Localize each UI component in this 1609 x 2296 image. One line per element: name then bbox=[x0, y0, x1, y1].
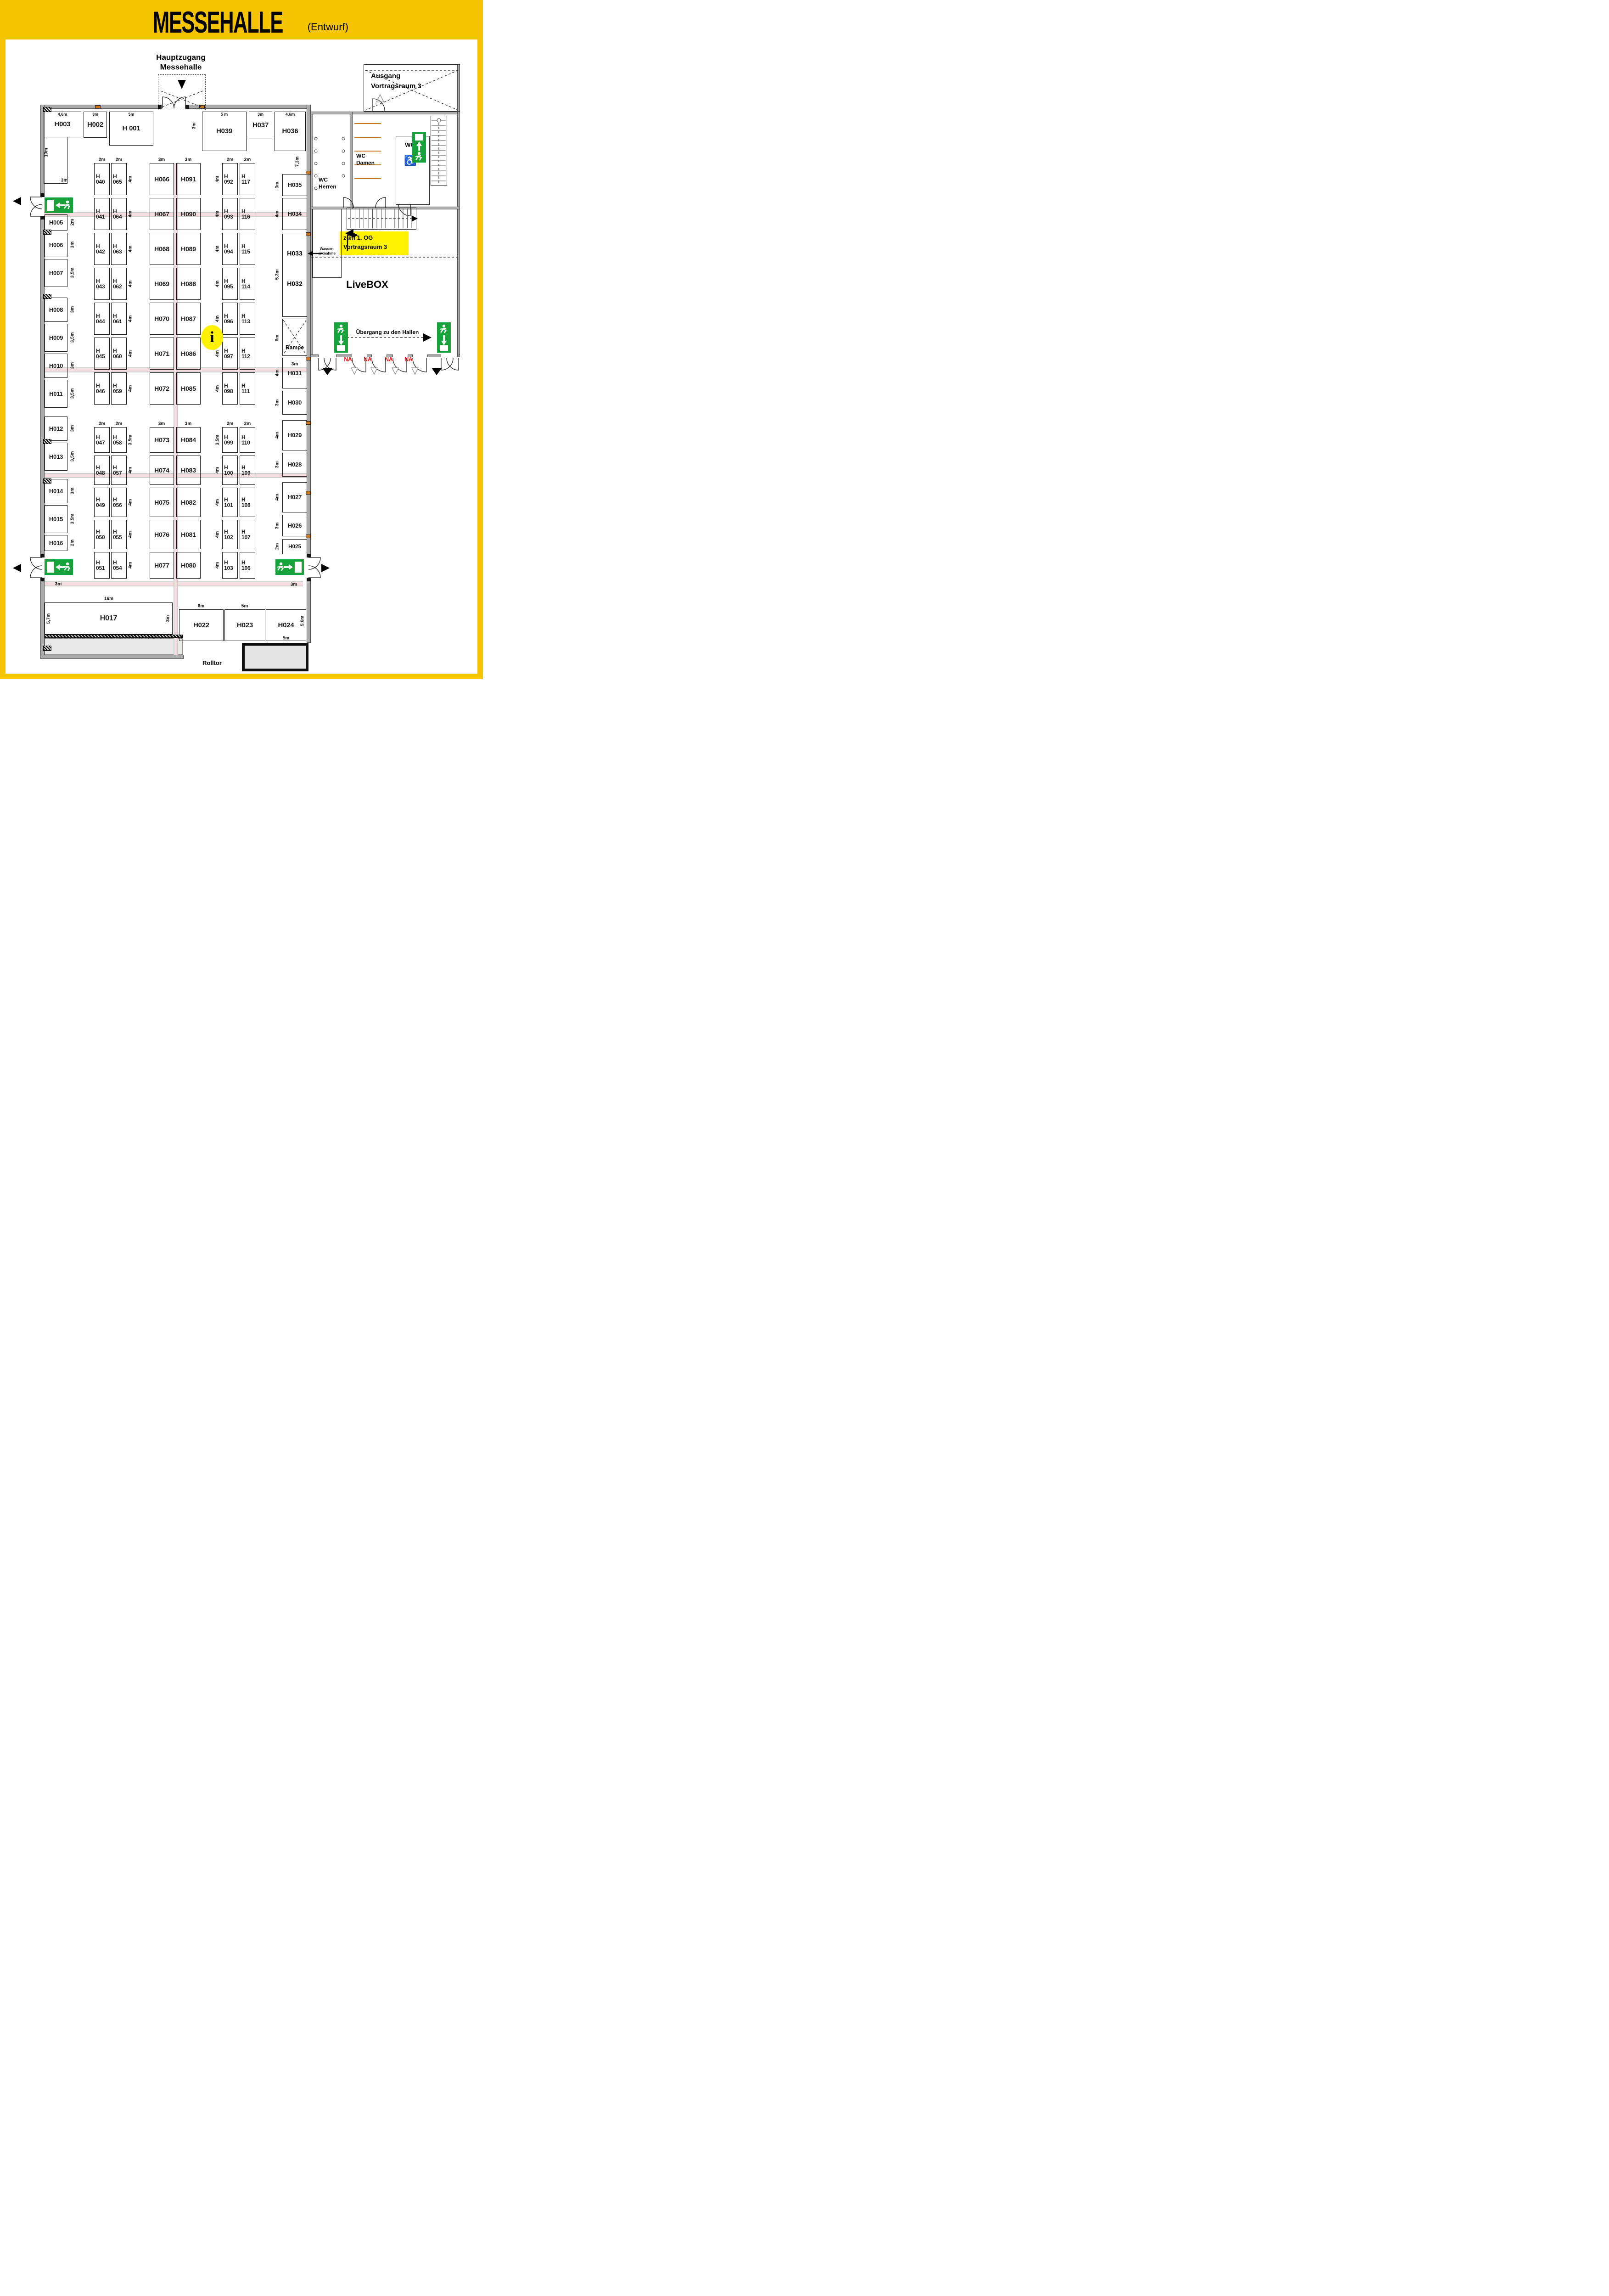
dimension-label: 3m bbox=[70, 362, 75, 369]
structure-hatchw bbox=[45, 635, 183, 638]
booth-label: H074 bbox=[154, 467, 169, 473]
booth-label: H013 bbox=[49, 454, 63, 460]
booth-H071: H071 bbox=[150, 338, 174, 370]
structure-oline bbox=[354, 123, 381, 124]
dimension-label: 6m bbox=[198, 604, 204, 609]
booth-label: H 112 bbox=[241, 348, 250, 359]
dimension-label: 4m bbox=[275, 211, 280, 217]
frame-bottom bbox=[0, 674, 483, 679]
booth-label: H 107 bbox=[241, 529, 250, 540]
page-title: MESSEHALLE bbox=[153, 9, 283, 36]
dimension-label: 16m bbox=[104, 597, 113, 602]
booth-H087: H087 bbox=[176, 303, 201, 335]
booth-H101: H 101 bbox=[222, 488, 238, 517]
booth-H116: H 116 bbox=[240, 198, 255, 230]
dimension-label: 5,6m bbox=[300, 616, 305, 626]
booth-label: H080 bbox=[181, 562, 196, 568]
structure-bmark bbox=[40, 216, 45, 219]
wasser-line1: Wasser- bbox=[320, 248, 334, 252]
booth-label: H 103 bbox=[224, 560, 233, 571]
west-bottom-exit-arrow bbox=[13, 564, 21, 572]
dimension-label: 3m bbox=[158, 158, 165, 163]
booth-label: H 056 bbox=[113, 497, 122, 508]
booth-H033-H032 bbox=[282, 234, 307, 317]
passage-door-leaf bbox=[447, 358, 459, 370]
dimension-label: 3m bbox=[275, 400, 280, 406]
booth-label: H 093 bbox=[224, 208, 233, 219]
booth-label: H025 bbox=[288, 544, 301, 549]
passage-door-arrow-right bbox=[432, 368, 442, 375]
booth-H046: H 046 bbox=[94, 372, 110, 405]
booth-H009: H009 bbox=[45, 324, 67, 352]
booth-label: H002 bbox=[87, 121, 103, 128]
structure-wall bbox=[307, 578, 311, 643]
na-door-marker-3 bbox=[392, 368, 398, 374]
rampe-label: Rampe bbox=[286, 344, 304, 350]
booth-label: H 040 bbox=[96, 174, 105, 185]
booth-label: H026 bbox=[288, 523, 302, 529]
booth-H093: H 093 bbox=[222, 198, 238, 230]
dimension-label: 4m bbox=[128, 531, 133, 538]
dimension-label: 5,7m bbox=[46, 613, 51, 624]
booth-H015: H015 bbox=[45, 505, 67, 533]
booth-label: H030 bbox=[288, 400, 302, 405]
booth-H097: H 097 bbox=[222, 338, 238, 370]
booth-label: H086 bbox=[181, 350, 196, 357]
structure-wall bbox=[310, 112, 460, 114]
booth-label: H 049 bbox=[96, 497, 105, 508]
na-door-leaf-2 bbox=[372, 358, 386, 372]
booth-H061: H 061 bbox=[111, 303, 127, 335]
dimension-label: 3,5m bbox=[70, 451, 75, 462]
structure-wall bbox=[350, 112, 353, 209]
dimension-label: 4m bbox=[128, 467, 133, 473]
booth-H086: H086 bbox=[176, 338, 201, 370]
booth-H069: H069 bbox=[150, 268, 174, 300]
passage-door-arrow-left bbox=[322, 368, 333, 375]
dimension-label: 2m bbox=[99, 422, 105, 427]
booth-H045: H 045 bbox=[94, 338, 110, 370]
booth-H017: H017 bbox=[45, 602, 173, 635]
booth-label: H034 bbox=[288, 211, 302, 217]
structure-omark bbox=[306, 171, 311, 174]
zum-og-line2: Vortragsraum 3 bbox=[343, 244, 387, 250]
structure-bmark bbox=[40, 578, 45, 581]
dimension-label: 3,5m bbox=[70, 514, 75, 524]
structure-omark bbox=[306, 232, 311, 236]
booth-H070: H070 bbox=[150, 303, 174, 335]
booth-label: H091 bbox=[181, 176, 196, 182]
structure-thinb bbox=[312, 209, 342, 278]
east-bottom-exit-arrow bbox=[321, 564, 330, 572]
dimension-label: 3m bbox=[166, 615, 171, 622]
booth-label: H 065 bbox=[113, 174, 122, 185]
booth-H002: H0023m bbox=[84, 112, 107, 138]
structure-wall bbox=[427, 355, 441, 357]
dimension-label: 4m bbox=[215, 385, 220, 392]
booth-H063: H 063 bbox=[111, 233, 127, 265]
booth-H112: H 112 bbox=[240, 338, 255, 370]
booth-label: H 057 bbox=[113, 465, 122, 476]
info-icon: i bbox=[201, 325, 223, 350]
booth-H117: H 117 bbox=[240, 163, 255, 195]
structure-omark bbox=[306, 491, 311, 495]
structure-wall bbox=[40, 655, 184, 659]
booth-H062: H 062 bbox=[111, 268, 127, 300]
dimension-label: 3m bbox=[291, 582, 297, 587]
passage-door-leaf bbox=[324, 358, 336, 370]
exit-pictogram-icon bbox=[334, 322, 348, 353]
booth-label: H017 bbox=[100, 615, 117, 622]
booth-H036: H0364,6m bbox=[275, 112, 306, 151]
booth-H057: H 057 bbox=[111, 456, 127, 485]
structure-omark bbox=[199, 105, 205, 108]
booth-H091: H091 bbox=[176, 163, 201, 195]
exit-sign-west-top bbox=[45, 197, 73, 213]
booth-label: H 115 bbox=[241, 243, 250, 254]
booth-label: H081 bbox=[181, 531, 196, 538]
na-label-3: NA bbox=[385, 356, 392, 362]
na-label-4: NA bbox=[404, 356, 412, 362]
dimension-label: 6m bbox=[275, 335, 280, 341]
booth-H050: H 050 bbox=[94, 520, 110, 549]
structure-hatch bbox=[43, 294, 51, 299]
booth-H067: H067 bbox=[150, 198, 174, 230]
dimension-label: 4m bbox=[215, 211, 220, 217]
na-door-marker-1 bbox=[351, 368, 358, 374]
booth-label: H 047 bbox=[96, 434, 105, 445]
booth-label: H087 bbox=[181, 315, 196, 322]
booth-label: H 102 bbox=[224, 529, 233, 540]
booth-label: H066 bbox=[154, 176, 169, 182]
dimension-label: 2m bbox=[244, 158, 251, 163]
dimension-label: 3,5m bbox=[70, 268, 75, 278]
booth-H010: H010 bbox=[45, 354, 67, 378]
booth-label: H 054 bbox=[113, 560, 122, 571]
booth-label: H 044 bbox=[96, 313, 105, 324]
exit-sign-vortragsraum bbox=[412, 132, 426, 163]
dimension-label: 3m bbox=[185, 422, 191, 427]
dimension-label: 2m bbox=[227, 158, 233, 163]
booth-label: H089 bbox=[181, 246, 196, 252]
na-door-marker-4 bbox=[412, 368, 418, 374]
booth-H042: H 042 bbox=[94, 233, 110, 265]
booth-H088: H088 bbox=[176, 268, 201, 300]
west-bottom-door-leaf bbox=[30, 557, 42, 569]
title-banner: MESSEHALLE (Entwurf) bbox=[0, 0, 483, 39]
dimension-label: 2m bbox=[70, 540, 75, 546]
booth-label: H069 bbox=[154, 281, 169, 287]
dimension-label: 4m bbox=[215, 315, 220, 322]
structure-oline bbox=[354, 178, 381, 179]
na-label-1: NA bbox=[344, 356, 352, 362]
booth-label: H073 bbox=[154, 437, 169, 443]
booth-H073: H073 bbox=[150, 427, 174, 453]
booth-H106: H 106 bbox=[240, 552, 255, 579]
booth-H043: H 043 bbox=[94, 268, 110, 300]
dimension-label: 4m bbox=[128, 499, 133, 506]
booth-label: H005 bbox=[49, 219, 63, 225]
exit-sign-passage-right bbox=[437, 322, 451, 353]
booth-H012: H012 bbox=[45, 416, 67, 441]
structure-wall bbox=[40, 216, 45, 557]
booth-H111: H 111 bbox=[240, 372, 255, 405]
booth-label: H 113 bbox=[241, 313, 250, 324]
na-label-2: NA bbox=[364, 356, 371, 362]
booth-H001: H 0015m bbox=[109, 112, 153, 146]
booth-label: H 116 bbox=[241, 208, 250, 219]
dimension-label: 3m bbox=[70, 306, 75, 313]
dimension-label: 3m bbox=[275, 182, 280, 188]
booth-label: H 108 bbox=[241, 497, 250, 508]
booth-label: H 094 bbox=[224, 243, 233, 254]
structure-bmark bbox=[185, 105, 189, 109]
booth-H075: H075 bbox=[150, 488, 174, 517]
booth-H058: H 058 bbox=[111, 427, 127, 453]
zum-og-line1: zum 1. OG bbox=[343, 235, 373, 241]
booth-H048: H 048 bbox=[94, 456, 110, 485]
dimension-label: 4m bbox=[128, 211, 133, 217]
dimension-label: 4m bbox=[215, 176, 220, 182]
dimension-label: 4m bbox=[128, 385, 133, 392]
ausgang-line1: Ausgang bbox=[371, 73, 400, 80]
booth-label: H072 bbox=[154, 385, 169, 392]
booth-label: H006 bbox=[49, 242, 63, 248]
booth-H074: H074 bbox=[150, 456, 174, 485]
rolltor-label: Rolltor bbox=[202, 660, 222, 666]
structure-hatch bbox=[43, 646, 51, 651]
booth-label: H039 bbox=[216, 128, 232, 135]
booth-H027: H027 bbox=[282, 482, 307, 512]
dimension-label: 4m bbox=[215, 531, 220, 538]
booth-label: H085 bbox=[181, 385, 196, 392]
dimension-label: 3,5m bbox=[215, 435, 220, 445]
structure-wall bbox=[40, 105, 162, 109]
passage-door-leaf bbox=[441, 358, 453, 370]
booth-H035: H035 bbox=[282, 174, 307, 196]
booth-label: H 097 bbox=[224, 348, 233, 359]
booth-label: H035 bbox=[288, 182, 302, 188]
dimension-label: 4m bbox=[275, 370, 280, 376]
booth-label: H 061 bbox=[113, 313, 122, 324]
booth-label: H077 bbox=[154, 562, 169, 568]
booth-label: H027 bbox=[288, 494, 302, 500]
booth-label: H012 bbox=[49, 426, 63, 432]
booth-label: H009 bbox=[49, 335, 63, 341]
dimension-label: 2m bbox=[227, 422, 233, 427]
booth-label: H 064 bbox=[113, 208, 122, 219]
dimension-label: 4m bbox=[128, 562, 133, 568]
structure-oline bbox=[354, 151, 381, 152]
booth-H034: H034 bbox=[282, 198, 307, 230]
structure-thinb bbox=[347, 208, 416, 230]
booth-H114: H 114 bbox=[240, 268, 255, 300]
livebox-label: LiveBOX bbox=[346, 279, 388, 290]
booth-H115: H 115 bbox=[240, 233, 255, 265]
dimension-label: 3,5m bbox=[70, 388, 75, 399]
booth-H100: H 100 bbox=[222, 456, 238, 485]
booth-H090: H090 bbox=[176, 198, 201, 230]
structure-bmark bbox=[307, 554, 311, 557]
booth-label: H083 bbox=[181, 467, 196, 473]
booth-label: H024 bbox=[278, 622, 294, 629]
booth-H007: H007 bbox=[45, 259, 67, 287]
booth-label: H088 bbox=[181, 281, 196, 287]
dimension-label: 3,5m bbox=[70, 332, 75, 343]
booth-label: H084 bbox=[181, 437, 196, 443]
booth-H064: H 064 bbox=[111, 198, 127, 230]
booth-H099: H 099 bbox=[222, 427, 238, 453]
booth-label: H031 bbox=[288, 370, 302, 376]
booth-label: H028 bbox=[288, 461, 302, 467]
booth-H110: H 110 bbox=[240, 427, 255, 453]
booth-H026: H026 bbox=[282, 515, 307, 536]
west-top-door-leaf bbox=[30, 204, 42, 216]
booth-H081: H081 bbox=[176, 520, 201, 549]
booth-H025: H025 bbox=[282, 539, 307, 554]
dimension-label: 2m bbox=[275, 543, 280, 550]
frame-left bbox=[0, 39, 6, 679]
exit-pictogram-icon bbox=[412, 132, 426, 163]
booth-H047: H 047 bbox=[94, 427, 110, 453]
dimension-label: 4m bbox=[128, 176, 133, 182]
structure-omark bbox=[95, 105, 101, 108]
booth-label: H 050 bbox=[96, 529, 105, 540]
booth-H022: H022 bbox=[179, 609, 224, 641]
booth-label: H 109 bbox=[241, 465, 250, 476]
booth-label: H 098 bbox=[224, 383, 233, 394]
structure-gfill bbox=[45, 638, 183, 655]
booth-H108: H 108 bbox=[240, 488, 255, 517]
dimension-label: 3m bbox=[70, 425, 75, 432]
booth-H095: H 095 bbox=[222, 268, 238, 300]
booth-H005: H005 bbox=[45, 214, 67, 231]
booth-H023: H023 bbox=[224, 609, 265, 641]
booth-H003-ext bbox=[44, 137, 67, 184]
exit-sign-east-bottom bbox=[275, 559, 304, 575]
booth-label: H 043 bbox=[96, 278, 105, 289]
booth-label: H071 bbox=[154, 350, 169, 357]
hauptzugang-line1: Hauptzugang bbox=[156, 54, 206, 62]
booth-label: H 048 bbox=[96, 465, 105, 476]
structure-omark bbox=[306, 357, 311, 360]
exit-sign-west-bottom bbox=[45, 559, 73, 575]
structure-bmark bbox=[307, 578, 311, 581]
ausgang-line2: Vortragsraum 3 bbox=[371, 83, 421, 90]
dimension-label: 3m bbox=[275, 523, 280, 529]
exit-pictogram-icon bbox=[45, 559, 73, 575]
booth-H056: H 056 bbox=[111, 488, 127, 517]
booth-label: H 114 bbox=[241, 278, 250, 289]
structure-bmark bbox=[158, 105, 162, 109]
dimension-label: 3m bbox=[185, 158, 191, 163]
exit-pictogram-icon bbox=[275, 559, 304, 575]
booth-H055: H 055 bbox=[111, 520, 127, 549]
booth-H065: H 065 bbox=[111, 163, 127, 195]
structure-oline bbox=[354, 137, 381, 138]
booth-H003: H0034,6m bbox=[44, 112, 81, 137]
dimension-label: 4m bbox=[128, 281, 133, 287]
booth-label: H014 bbox=[49, 488, 63, 494]
booth-label: H 042 bbox=[96, 243, 105, 254]
dimension-label: 10m bbox=[44, 148, 49, 157]
booth-label: H070 bbox=[154, 315, 169, 322]
dimension-label: 3m bbox=[70, 242, 75, 248]
west-bottom-door-leaf bbox=[30, 566, 42, 578]
booth-label: H015 bbox=[49, 516, 63, 522]
dimension-label: 2m bbox=[99, 158, 105, 163]
na-door-marker-2 bbox=[371, 368, 377, 374]
booth-H107: H 107 bbox=[240, 520, 255, 549]
booth-H008: H008 bbox=[45, 298, 67, 322]
booth-label: H 099 bbox=[224, 434, 233, 445]
exit-pictogram-icon bbox=[437, 322, 451, 353]
booth-H039: H0395 m bbox=[202, 112, 247, 151]
structure-bmark bbox=[40, 193, 45, 197]
booth-H037: H0373m bbox=[249, 112, 272, 139]
H032-label: H032 bbox=[287, 280, 302, 287]
booth-label: H037 bbox=[252, 122, 269, 129]
dimension-label: 5m bbox=[241, 604, 248, 609]
booth-H006: H006 bbox=[45, 233, 67, 257]
dimension-label: 3m bbox=[55, 582, 62, 587]
booth-label: H067 bbox=[154, 211, 169, 217]
structure-wall bbox=[310, 355, 319, 357]
booth-H082: H082 bbox=[176, 488, 201, 517]
booth-label: H 060 bbox=[113, 348, 122, 359]
structure-wall bbox=[459, 355, 460, 357]
booth-H049: H 049 bbox=[94, 488, 110, 517]
structure-hatch bbox=[43, 478, 51, 484]
booth-H096: H 096 bbox=[222, 303, 238, 335]
booth-H054: H 054 bbox=[111, 552, 127, 579]
booth-H076: H076 bbox=[150, 520, 174, 549]
booth-label: H 046 bbox=[96, 383, 105, 394]
dimension-label: 5,3m bbox=[275, 270, 280, 280]
dimension-label: 3,5m bbox=[128, 435, 133, 445]
booth-label: H016 bbox=[49, 540, 63, 546]
booth-H098: H 098 bbox=[222, 372, 238, 405]
dimension-label: 3m bbox=[158, 422, 165, 427]
booth-H102: H 102 bbox=[222, 520, 238, 549]
booth-H029: H029 bbox=[282, 420, 307, 450]
floor-plan: H0034,6mH0023mH 0015mH0395 mH0373mH0364,… bbox=[0, 0, 483, 689]
wc-damen-line2: Damen bbox=[356, 160, 375, 166]
booth-label: H 059 bbox=[113, 383, 122, 394]
booth-label: H 051 bbox=[96, 560, 105, 571]
dimension-label: 2m bbox=[116, 158, 122, 163]
floor-plan-page: MESSEHALLE (Entwurf) H0034,6mH0023mH 001… bbox=[0, 0, 483, 689]
booth-H113: H 113 bbox=[240, 303, 255, 335]
booth-label: H011 bbox=[49, 391, 63, 397]
booth-label: H 095 bbox=[224, 278, 233, 289]
dimension-label: 4m bbox=[215, 562, 220, 568]
exit-sign-passage-left bbox=[334, 322, 348, 353]
booth-H044: H 044 bbox=[94, 303, 110, 335]
booth-label: H010 bbox=[49, 363, 63, 369]
dimension-label: 3m bbox=[70, 488, 75, 494]
dimension-label: 3m bbox=[249, 113, 272, 117]
booth-label: H 058 bbox=[113, 434, 122, 445]
dimension-label: 4m bbox=[215, 499, 220, 506]
booth-label: H082 bbox=[181, 499, 196, 506]
dimension-label: 5 m bbox=[202, 113, 246, 117]
booth-H077: H077 bbox=[150, 552, 174, 579]
booth-H041: H 041 bbox=[94, 198, 110, 230]
structure-omark bbox=[306, 421, 311, 425]
booth-H060: H 060 bbox=[111, 338, 127, 370]
booth-label: H090 bbox=[181, 211, 196, 217]
